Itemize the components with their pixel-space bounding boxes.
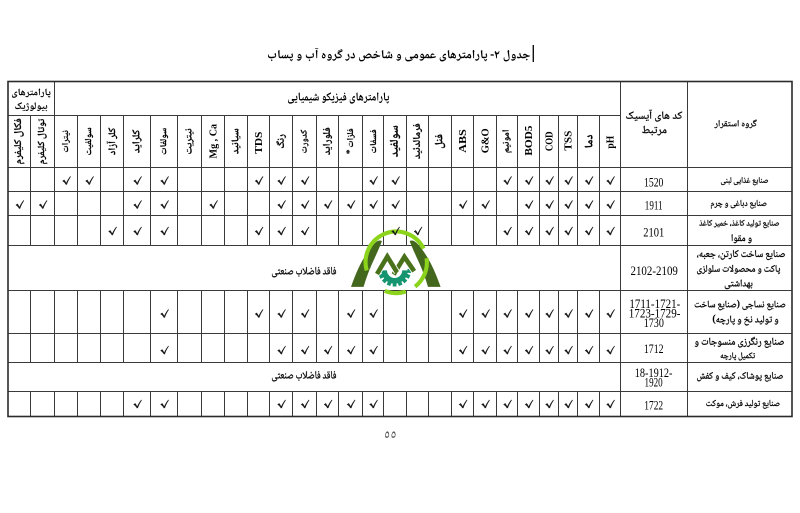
svg-text:TSS: TSS (564, 130, 575, 150)
svg-text:1920: 1920 (645, 376, 663, 390)
svg-text:ABS: ABS (458, 129, 469, 153)
svg-text:TDS: TDS (254, 131, 265, 153)
svg-text:1730: 1730 (644, 316, 664, 330)
svg-text:G&O: G&O (481, 128, 492, 153)
svg-text:Mg , Ca: Mg , Ca (209, 123, 220, 158)
svg-text:1712: 1712 (644, 342, 664, 356)
svg-text:1520: 1520 (644, 175, 663, 189)
svg-text:pH: pH (606, 136, 617, 149)
svg-text:1722: 1722 (644, 399, 663, 413)
svg-text:2102-2109: 2102-2109 (631, 264, 678, 278)
svg-text:BOD5: BOD5 (524, 126, 535, 156)
svg-text:COD: COD (545, 131, 556, 151)
svg-text:1911: 1911 (645, 199, 663, 213)
svg-text:2101: 2101 (643, 225, 664, 239)
